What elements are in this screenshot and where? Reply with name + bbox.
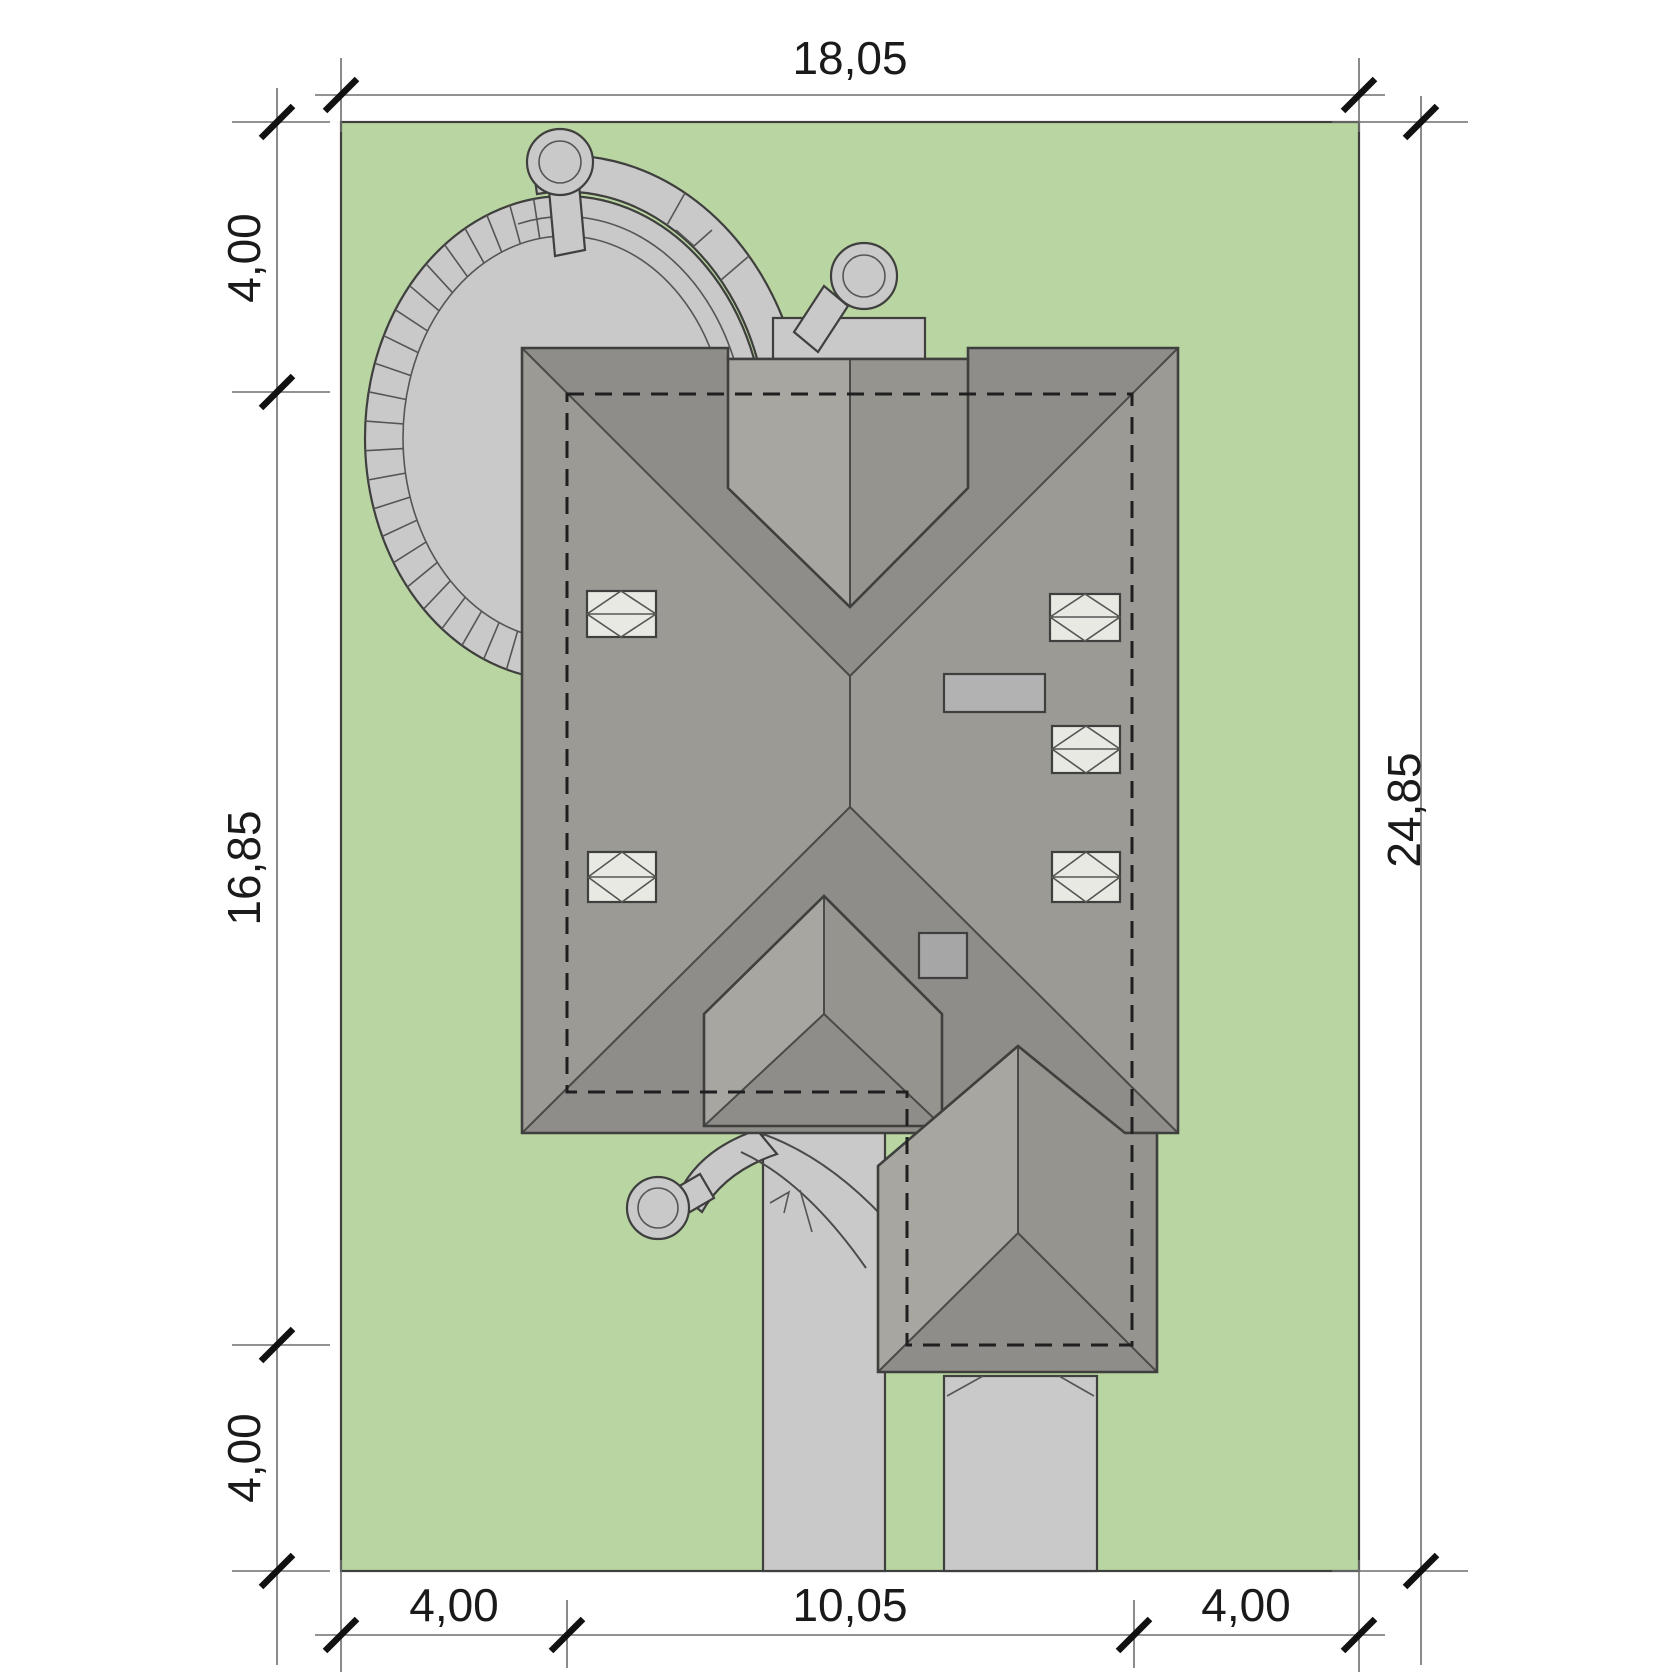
site-plan-page: 18,05 4,00 10,05 4,00 [0, 0, 1680, 1679]
skylight [1052, 726, 1120, 773]
shrub-icon [831, 243, 897, 309]
walkway [763, 1127, 885, 1571]
shrub-icon [627, 1177, 689, 1239]
skylight [1050, 594, 1120, 641]
dimension-label-bottom-left: 4,00 [409, 1579, 499, 1631]
skylight [588, 852, 656, 902]
roof-vent [919, 933, 967, 978]
skylight [1052, 852, 1120, 902]
dimension-label-top: 18,05 [792, 32, 907, 84]
dimension-label-right: 24,85 [1378, 752, 1430, 867]
entrance-canopy [773, 318, 925, 360]
skylight [587, 591, 656, 637]
dimension-label-bottom-right: 4,00 [1201, 1579, 1291, 1631]
driveway [944, 1376, 1097, 1571]
driveway-surface [944, 1376, 1097, 1571]
dimension-label-left-bottom: 4,00 [218, 1413, 270, 1503]
dimension-label-left-top: 4,00 [218, 213, 270, 303]
dimension-label-bottom-center: 10,05 [792, 1579, 907, 1631]
chimney [944, 674, 1045, 712]
shrub-icon [527, 129, 593, 195]
site-plan-drawing: 18,05 4,00 10,05 4,00 [0, 0, 1680, 1679]
dimension-label-left-middle: 16,85 [218, 810, 270, 925]
